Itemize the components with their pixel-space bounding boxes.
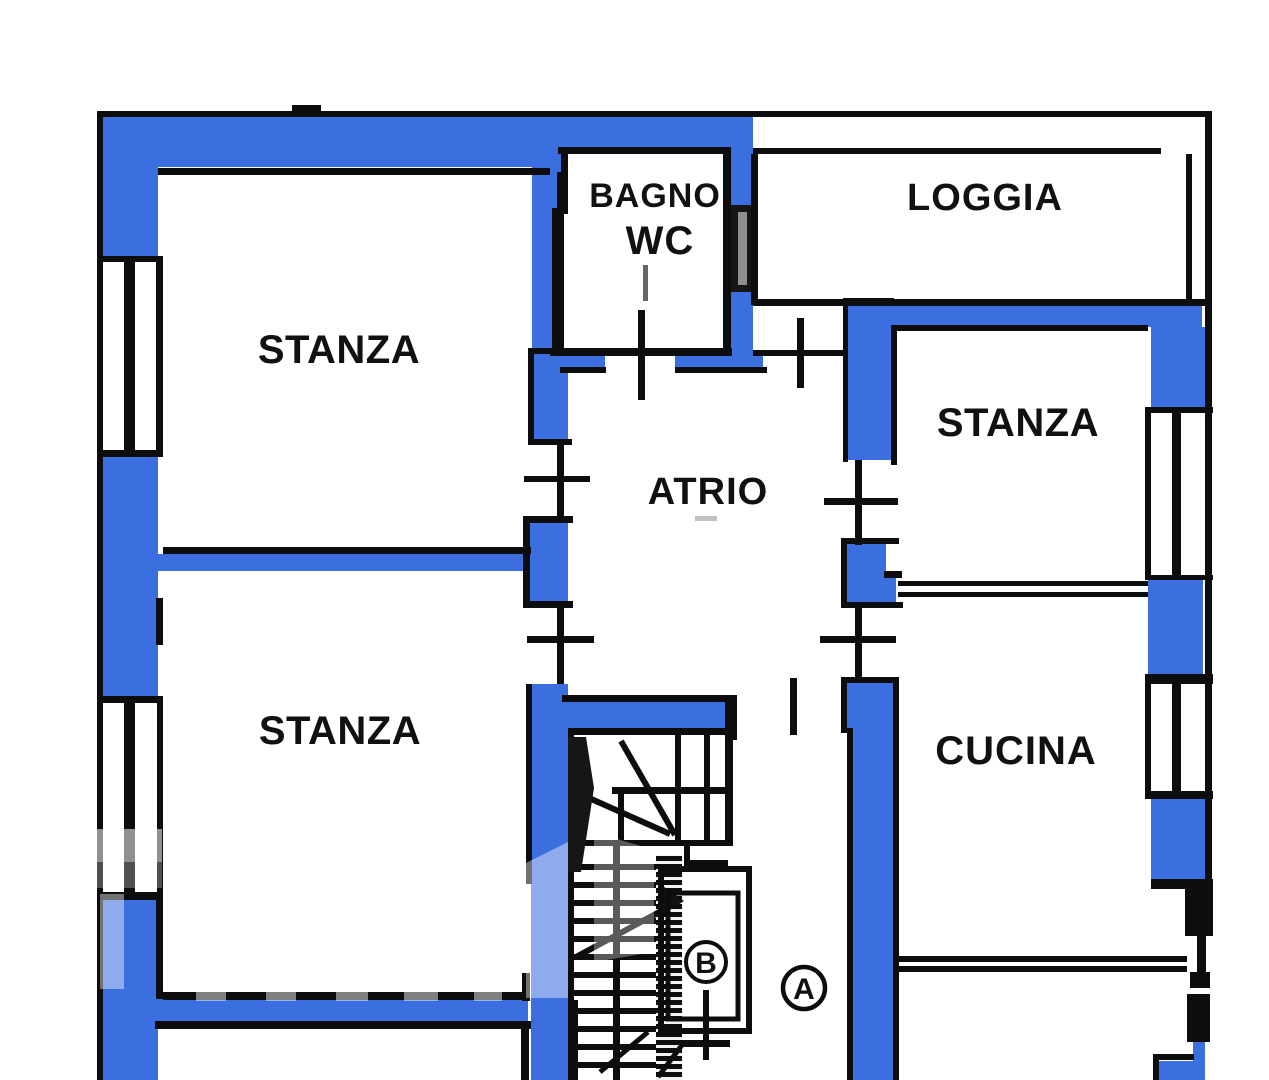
svg-text:LOGGIA: LOGGIA xyxy=(907,177,1063,219)
svg-text:WC: WC xyxy=(626,219,695,263)
svg-text:B: B xyxy=(695,947,717,980)
svg-text:CUCINA: CUCINA xyxy=(935,729,1097,773)
svg-text:A: A xyxy=(793,973,815,1006)
svg-text:STANZA: STANZA xyxy=(937,401,1099,445)
svg-text:ATRIO: ATRIO xyxy=(648,471,768,513)
svg-text:STANZA: STANZA xyxy=(259,709,421,753)
svg-text:STANZA: STANZA xyxy=(258,328,420,372)
svg-text:BAGNO: BAGNO xyxy=(589,177,721,215)
